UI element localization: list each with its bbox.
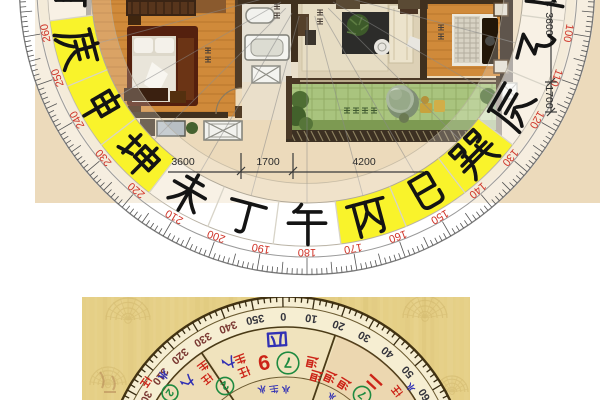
svg-text:180: 180	[298, 246, 316, 258]
svg-text:10: 10	[304, 311, 318, 325]
svg-text:1700: 1700	[543, 85, 555, 109]
svg-text:3600: 3600	[171, 156, 195, 168]
svg-text:3600: 3600	[543, 12, 555, 36]
svg-text:4200: 4200	[352, 156, 376, 168]
svg-text:0: 0	[280, 310, 286, 322]
svg-text:7: 7	[284, 354, 293, 371]
svg-text:1700: 1700	[256, 156, 280, 168]
